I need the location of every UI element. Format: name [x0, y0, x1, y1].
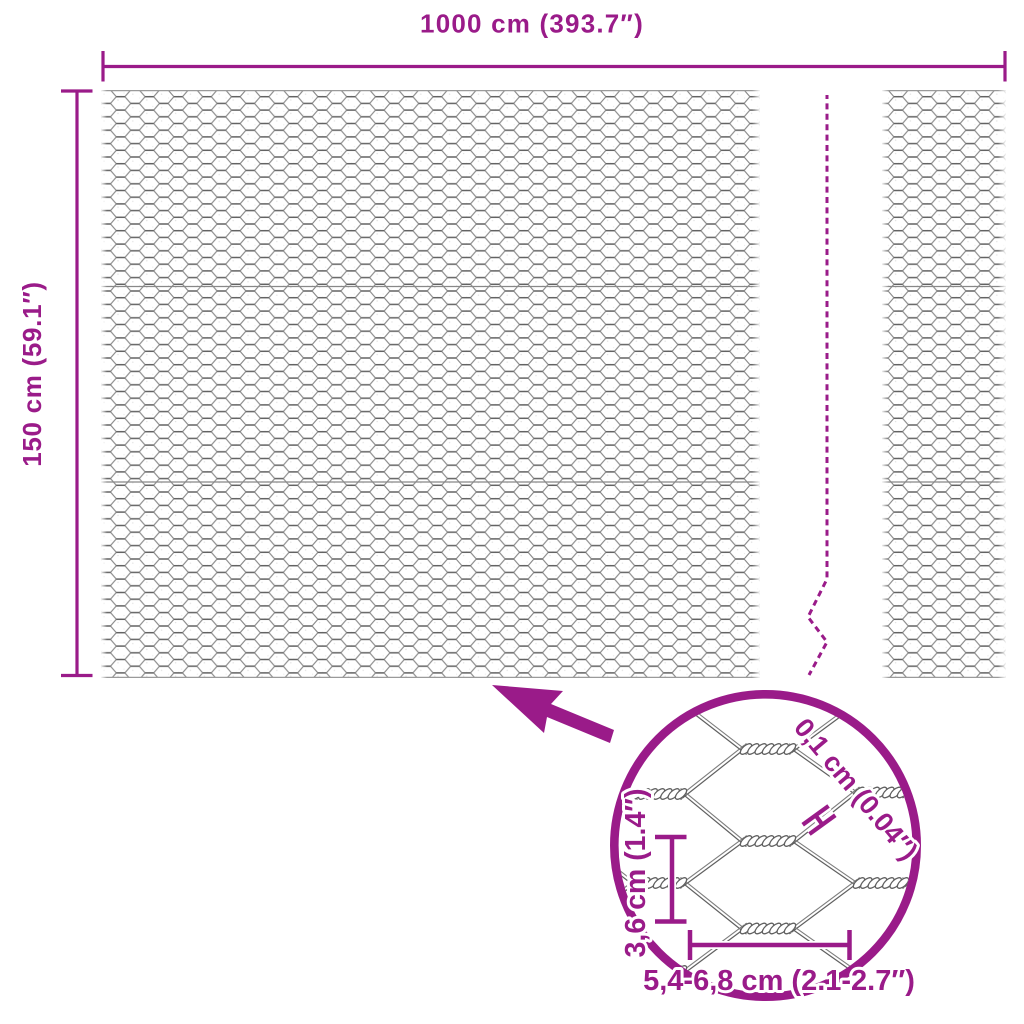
- svg-text:5,4-6,8 cm (2.1-2.7″): 5,4-6,8 cm (2.1-2.7″): [643, 965, 915, 997]
- svg-text:150 cm (59.1″): 150 cm (59.1″): [17, 281, 47, 467]
- svg-text:1000 cm (393.7″): 1000 cm (393.7″): [420, 9, 644, 39]
- svg-text:3,6 cm (1.4″): 3,6 cm (1.4″): [620, 789, 652, 958]
